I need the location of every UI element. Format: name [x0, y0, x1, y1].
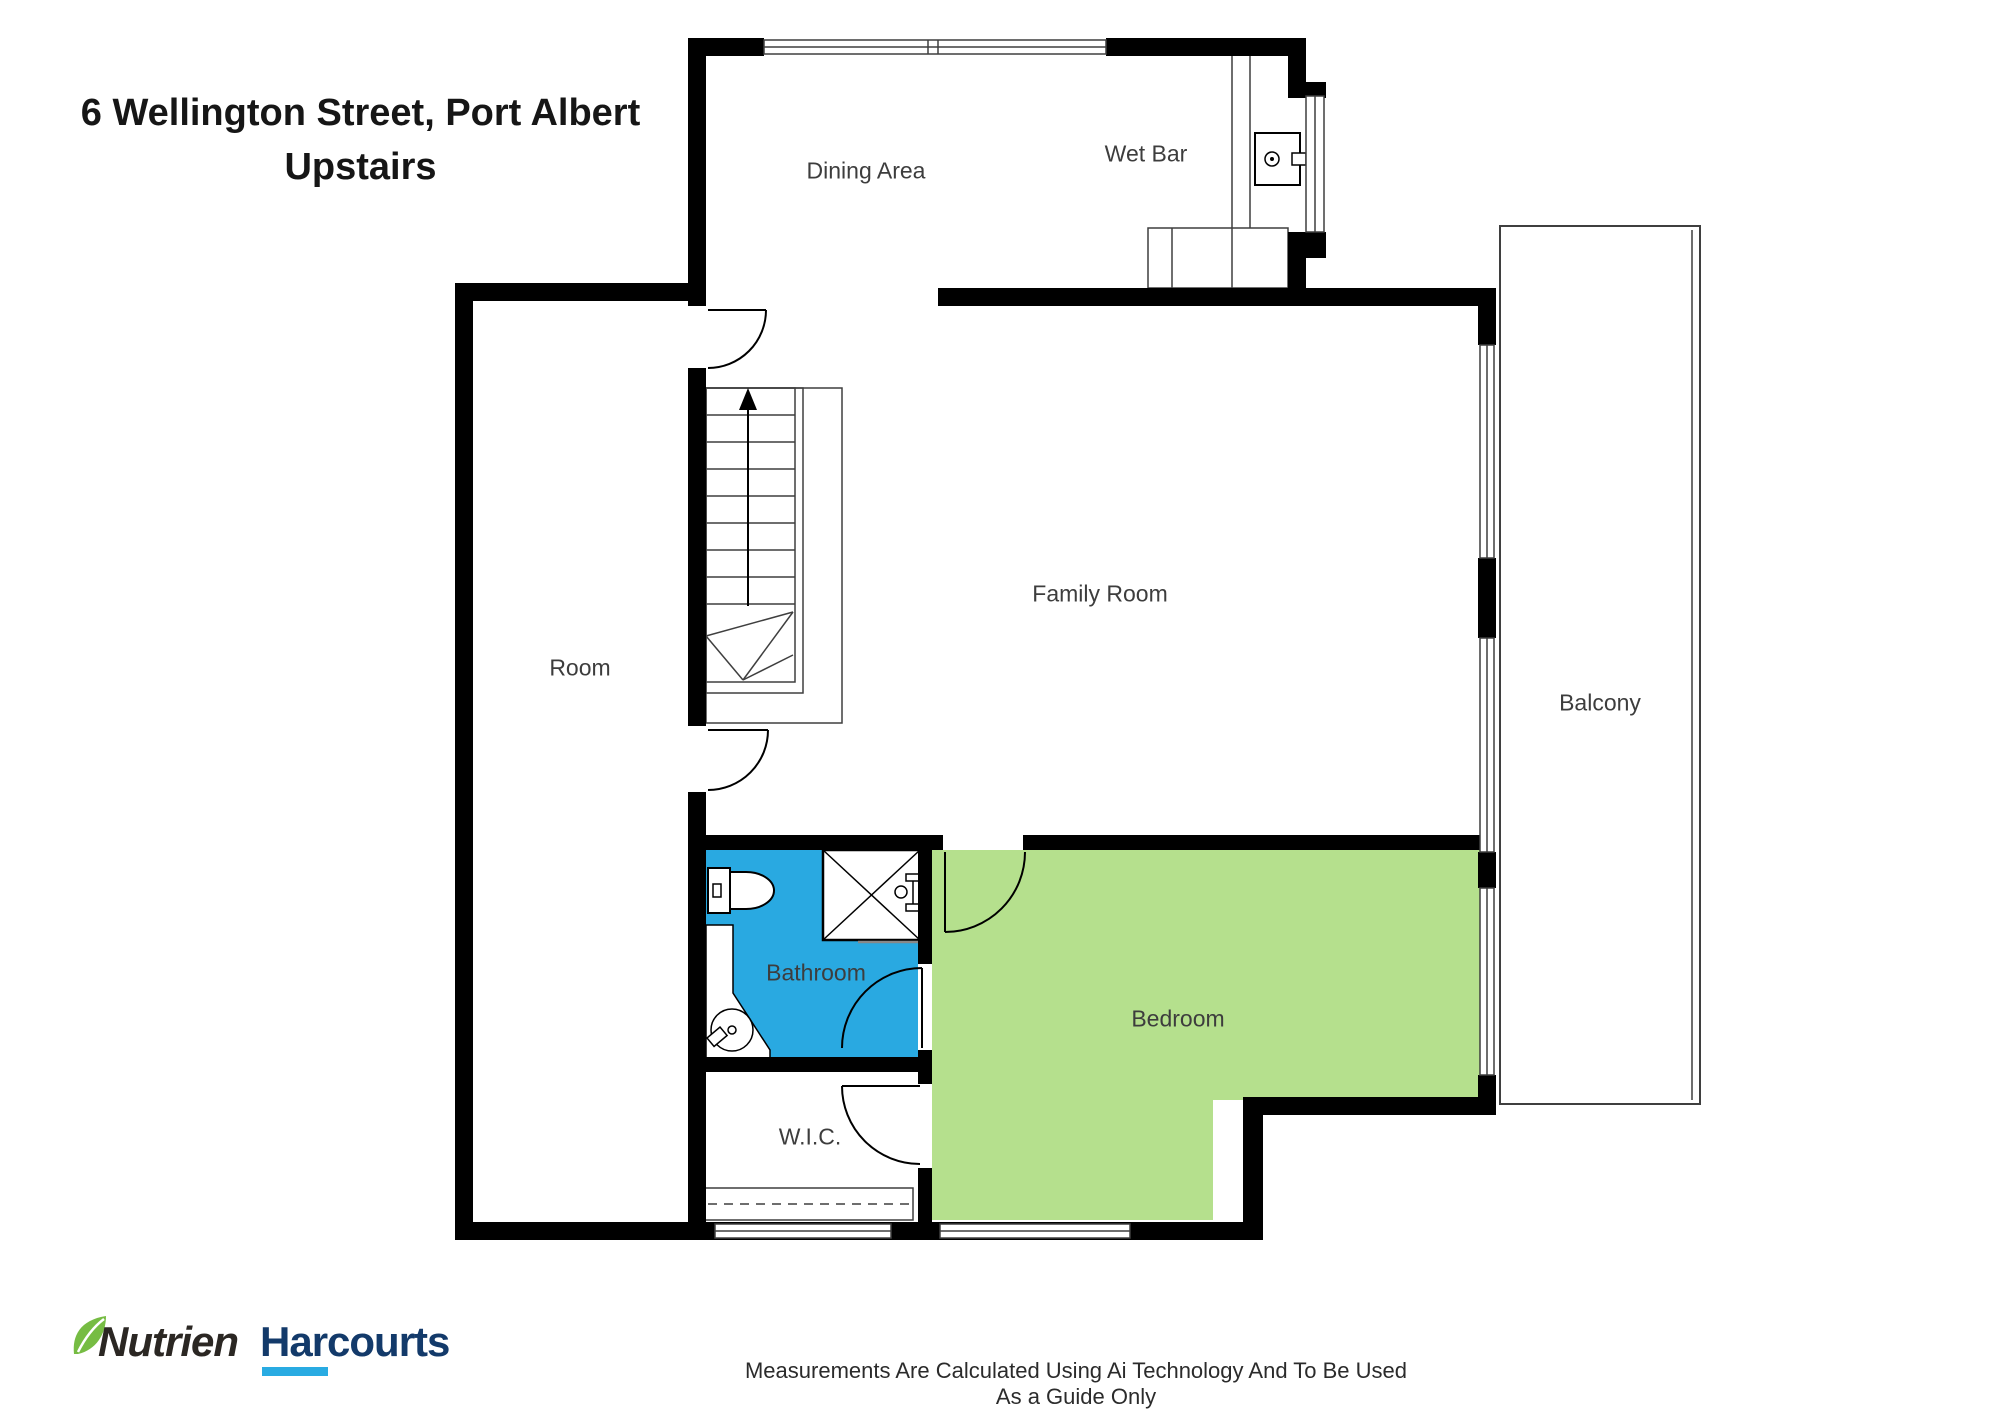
wet-bar-counter — [1148, 56, 1306, 288]
disclaimer-text: Measurements Are Calculated Using Ai Tec… — [740, 1358, 1412, 1410]
room-label-room: Room — [549, 655, 610, 682]
shower-icon — [823, 850, 920, 942]
floorplan-page: 6 Wellington Street, Port Albert Upstair… — [0, 0, 2000, 1414]
landing-door — [686, 306, 766, 368]
page-title: 6 Wellington Street, Port Albert Upstair… — [38, 86, 683, 194]
agency-logo: Nutrien Harcourts — [70, 1312, 449, 1366]
logo-cyan-underline — [262, 1367, 328, 1376]
room-label-bathroom: Bathroom — [766, 960, 866, 987]
room-label-balcony: Balcony — [1559, 690, 1641, 717]
stairs-up-arrow — [739, 388, 757, 606]
wet-bar-window — [1306, 96, 1324, 232]
closet-rod — [702, 1188, 913, 1220]
logo-nutrien: Nutrien — [98, 1318, 238, 1366]
room-label-wet-bar: Wet Bar — [1105, 141, 1188, 168]
logo-harcourts: Harcourts — [260, 1318, 449, 1366]
page-title-line2: Upstairs — [38, 140, 683, 194]
floorplan-drawing — [0, 0, 2000, 1414]
wic-door — [842, 1084, 932, 1168]
room-fills — [700, 845, 1480, 1220]
dining-window — [764, 40, 1106, 54]
room-label-dining: Dining Area — [807, 158, 926, 185]
room-label-bedroom: Bedroom — [1131, 1006, 1224, 1033]
room-label-wic: W.I.C. — [779, 1124, 842, 1151]
room-label-family: Family Room — [1032, 581, 1167, 608]
logo-harcourts-text: Harcourts — [260, 1318, 449, 1365]
staircase — [706, 388, 842, 723]
bedroom-window — [1480, 888, 1494, 1075]
bedroom-fill — [930, 848, 1480, 1220]
wet-bar-sink-icon — [1255, 133, 1306, 185]
family-room-door — [686, 726, 768, 792]
page-title-line1: 6 Wellington Street, Port Albert — [38, 86, 683, 140]
stair-winders — [706, 612, 793, 680]
balcony-railing — [1500, 226, 1700, 1104]
